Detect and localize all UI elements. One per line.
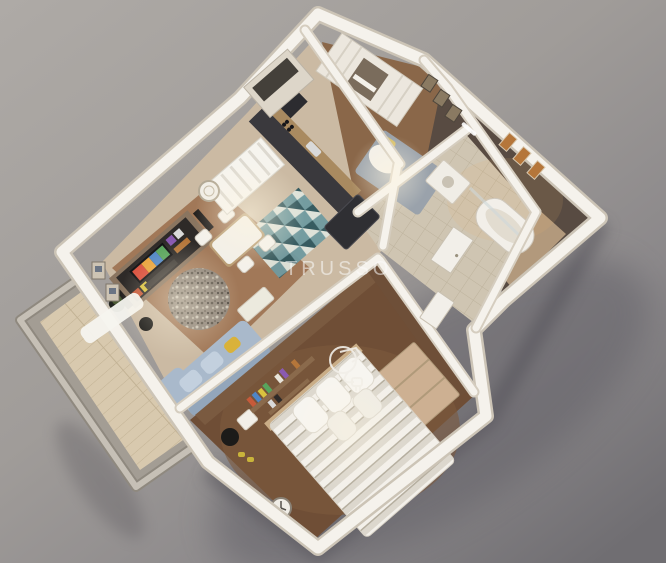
slippers (238, 452, 245, 457)
black-planter (221, 428, 239, 446)
floorplan-3d-render (0, 0, 666, 563)
render-viewport: TRUSSO (0, 0, 666, 563)
